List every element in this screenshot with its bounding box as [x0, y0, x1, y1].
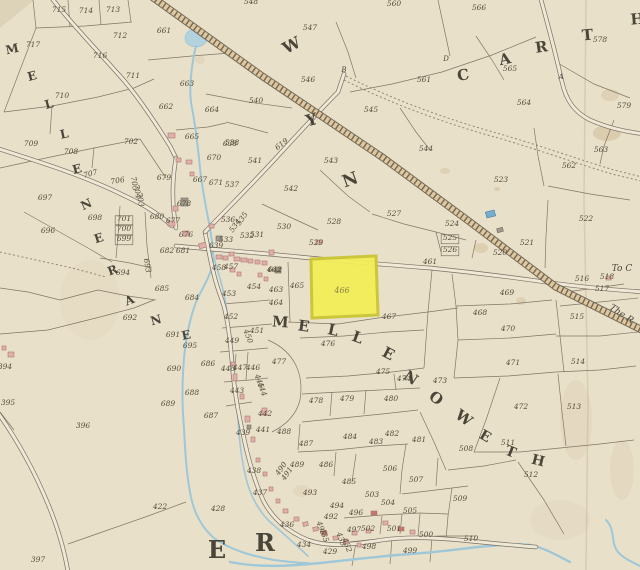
building — [357, 543, 361, 547]
parcel-number: 708 — [64, 147, 79, 156]
parcel-number: 685 — [155, 284, 170, 293]
parcel-number: 487 — [298, 439, 314, 448]
parcel-number: 697 — [38, 193, 53, 202]
parcel-number: 528 — [327, 217, 342, 226]
parcel-number: 483 — [368, 437, 384, 446]
parcel-number: 493 — [302, 488, 318, 497]
parcel-number: 510 — [464, 534, 479, 543]
parcel-number: 461 — [422, 257, 437, 266]
parcel-number: 689 — [161, 399, 176, 408]
parcel-number: 436 — [279, 520, 295, 529]
parcel-number: 502 — [361, 524, 376, 533]
parcel-number: 454 — [246, 282, 262, 291]
parcel-number: 527 — [387, 209, 402, 218]
parcel-number: 470 — [500, 324, 516, 333]
parcel-number: 713 — [106, 5, 121, 14]
parcel-number: 714 — [79, 6, 94, 15]
parcel-number: 509 — [453, 494, 468, 503]
map-canvas[interactable]: 4667157147137177127167117107097087027077… — [0, 0, 640, 570]
parcel-number: 512 — [524, 470, 539, 479]
parcel-number: 443 — [229, 386, 245, 395]
parcel-number: 531 — [250, 230, 264, 239]
parcel-number: 482 — [384, 429, 400, 438]
parcel-number: 464 — [268, 298, 284, 307]
parcel-number: 538 — [225, 138, 240, 147]
parcel-number: 507 — [409, 475, 424, 484]
building — [234, 257, 240, 261]
parcel-number: 702 — [124, 137, 139, 146]
parcel-number: 536 — [221, 215, 236, 224]
parcel-number: 503 — [365, 490, 380, 499]
parcel-number: 699 — [117, 234, 132, 243]
parcel-number: 514 — [571, 357, 586, 366]
parcel-number: 522 — [579, 214, 594, 223]
parcel-number: 506 — [383, 464, 398, 473]
parcel-number: 526 — [443, 245, 458, 254]
parcel-number: 562 — [562, 161, 577, 170]
building — [283, 509, 288, 513]
parcel-number: 548 — [244, 0, 259, 6]
building — [8, 352, 14, 357]
parcel-number: 504 — [381, 498, 396, 507]
parcel-number: 680 — [150, 212, 165, 221]
parcel-number: 485 — [341, 477, 357, 486]
parcel-number: 545 — [364, 105, 379, 114]
parcel-number: 453 — [221, 289, 237, 298]
building — [176, 158, 181, 162]
parcel-number: 665 — [185, 132, 200, 141]
stain-blotch — [516, 297, 526, 305]
parcel-number: 496 — [348, 508, 364, 517]
parcel-number: 677 — [166, 216, 181, 225]
parcel-number: 692 — [123, 313, 138, 322]
parcel-number: 442 — [257, 409, 273, 418]
parcel-number: 662 — [159, 102, 174, 111]
parcel-number: 682 — [160, 246, 175, 255]
parcel-number: 499 — [402, 546, 418, 555]
parcel-number: 473 — [432, 376, 448, 385]
parcel-number: 489 — [289, 460, 305, 469]
parcel-number: 540 — [249, 96, 264, 105]
parcel-number: 475 — [375, 367, 391, 376]
parcel-number: 547 — [303, 23, 318, 32]
building — [248, 259, 253, 263]
parcel-number: 477 — [271, 357, 287, 366]
parcel-number: 449 — [224, 336, 240, 345]
parcel-number: 663 — [180, 79, 195, 88]
building — [245, 416, 250, 422]
parcel-number: 439 — [235, 428, 251, 437]
building — [303, 522, 309, 527]
parcel-number: 517 — [595, 284, 610, 293]
parcel-466-label: 466 — [333, 286, 349, 295]
district-letter: H — [630, 9, 640, 28]
parcel-number: 397 — [31, 555, 46, 564]
parcel-number: 698 — [88, 213, 103, 222]
parcel-number: 671 — [209, 178, 223, 187]
parcel-number: 710 — [55, 91, 70, 100]
building — [237, 272, 241, 276]
parcel-number: 488 — [276, 427, 292, 436]
district-letter: R — [255, 528, 276, 557]
building — [294, 517, 299, 521]
parcel-number: 441 — [255, 425, 270, 434]
parcel-number: 500 — [419, 530, 434, 539]
parcel-number: 434 — [296, 540, 312, 549]
building — [216, 255, 222, 259]
parcel-number: 530 — [277, 222, 292, 231]
parcel-number: 437 — [252, 488, 268, 497]
parcel-number: 700 — [117, 224, 132, 233]
stain-blotch — [195, 56, 205, 64]
parcel-number: 498 — [361, 542, 377, 551]
parcel-number: 480 — [383, 394, 399, 403]
parcel-number: 467 — [381, 312, 397, 321]
parcel-number: 492 — [323, 512, 339, 521]
parcel-number: 546 — [301, 75, 316, 84]
parcel-number: 537 — [225, 180, 240, 189]
parcel-number: 429 — [322, 547, 338, 556]
parcel-number: 543 — [324, 156, 339, 165]
boundary-reference-letter: D — [442, 55, 449, 63]
parcel-number: 515 — [570, 312, 585, 321]
parcel-number: 661 — [157, 26, 171, 35]
parcel-number: 711 — [126, 71, 140, 80]
building — [371, 511, 377, 515]
parcel-number: 446 — [245, 363, 261, 372]
building — [223, 256, 228, 260]
parcel-number: 520 — [493, 248, 508, 257]
building — [241, 258, 247, 262]
parcel-number: 523 — [494, 175, 509, 184]
parcel-number: 508 — [459, 444, 474, 453]
building — [255, 260, 260, 264]
building — [251, 437, 255, 442]
parcel-number: 678 — [177, 199, 192, 208]
parcel-number: 481 — [411, 435, 426, 444]
parcel-number: 465 — [289, 281, 305, 290]
parcel-number: 717 — [26, 40, 41, 49]
building — [269, 487, 273, 491]
district-letter: M — [271, 312, 289, 331]
parcel-number: 544 — [419, 144, 434, 153]
building — [186, 160, 192, 164]
parcel-number: 497 — [346, 525, 362, 534]
building — [229, 252, 234, 256]
stain-blotch — [530, 500, 590, 540]
parcel-number: 394 — [0, 362, 12, 371]
building — [168, 133, 175, 138]
building — [263, 472, 267, 476]
district-letter: E — [208, 535, 226, 564]
parcel-number: 686 — [201, 359, 216, 368]
building — [233, 374, 237, 381]
parcel-number: 471 — [505, 358, 520, 367]
parcel-number: 462 — [266, 265, 282, 274]
parcel-number: 525 — [443, 233, 458, 242]
parcel-number: 716 — [93, 51, 108, 60]
parcel-number: 579 — [617, 101, 632, 110]
parcel-number: 478 — [308, 396, 324, 405]
parcel-number: 501 — [387, 524, 401, 533]
parcel-number: 681 — [176, 246, 190, 255]
historic-parish-map[interactable]: 4667157147137177127167117107097087027077… — [0, 0, 640, 570]
parcel-number: 521 — [520, 238, 534, 247]
parcel-number: 676 — [179, 230, 194, 239]
parcel-number: 513 — [567, 402, 582, 411]
edge-note-text: To C — [612, 264, 633, 274]
boundary-reference-letter: B — [340, 66, 346, 74]
building — [269, 250, 274, 255]
parcel-number: 457 — [223, 262, 239, 271]
parcel-number: 469 — [499, 288, 515, 297]
stain-blotch — [440, 168, 450, 174]
parcel-number: 486 — [318, 460, 334, 469]
parcel-number: 688 — [185, 388, 200, 397]
building — [258, 273, 262, 277]
parcel-number: 687 — [204, 411, 219, 420]
highlighted-parcel-466[interactable]: 466 — [311, 256, 378, 318]
parcel-number: 494 — [329, 501, 345, 510]
parcel-number: 670 — [207, 153, 222, 162]
building — [2, 346, 6, 350]
parcel-number: 463 — [268, 285, 284, 294]
parcel-number: 484 — [342, 432, 358, 441]
parcel-number: 529 — [309, 238, 324, 247]
parcel-number: 524 — [445, 219, 460, 228]
parcel-number: 679 — [157, 173, 172, 182]
building — [276, 499, 280, 503]
parcel-number: 691 — [166, 330, 180, 339]
parcel-number: 452 — [223, 312, 239, 321]
parcel-number: 715 — [52, 5, 67, 14]
parcel-number: 438 — [246, 466, 262, 475]
parcel-number: 667 — [193, 175, 208, 184]
stain-blotch — [494, 187, 500, 191]
building — [410, 530, 415, 534]
stain-blotch — [610, 440, 634, 500]
parcel-number: 578 — [593, 35, 608, 44]
parcel-number: 505 — [403, 506, 418, 515]
building — [209, 224, 214, 228]
boundary-reference-letter: A — [557, 73, 563, 81]
stain-blotch — [474, 243, 488, 253]
parcel-number: 516 — [575, 274, 590, 283]
parcel-number: 395 — [1, 398, 16, 407]
parcel-number: 684 — [185, 293, 200, 302]
parcel-number: 563 — [594, 145, 609, 154]
building — [264, 277, 268, 281]
stain-blotch — [601, 89, 619, 101]
parcel-number: 690 — [167, 364, 182, 373]
parcel-number: 696 — [41, 226, 56, 235]
parcel-number: 541 — [248, 156, 262, 165]
parcel-number: 566 — [472, 3, 487, 12]
parcel-number: 468 — [472, 308, 488, 317]
parcel-number: 422 — [152, 502, 168, 511]
parcel-number: 709 — [24, 139, 39, 148]
building — [256, 458, 260, 462]
parcel-number: 664 — [205, 105, 220, 114]
parcel-number: 564 — [517, 98, 532, 107]
parcel-number: 560 — [387, 0, 402, 8]
parcel-number: 479 — [339, 394, 355, 403]
parcel-number: 561 — [417, 75, 431, 84]
parcel-number: 428 — [210, 504, 226, 513]
parcel-number: 476 — [320, 339, 336, 348]
parcel-number: 533 — [219, 235, 234, 244]
parcel-number: 542 — [284, 184, 299, 193]
parcel-number: 472 — [513, 402, 529, 411]
parcel-number: 396 — [76, 421, 91, 430]
district-letter: M — [4, 41, 20, 57]
parcel-number: 712 — [113, 31, 128, 40]
parcel-number: 701 — [117, 214, 131, 223]
